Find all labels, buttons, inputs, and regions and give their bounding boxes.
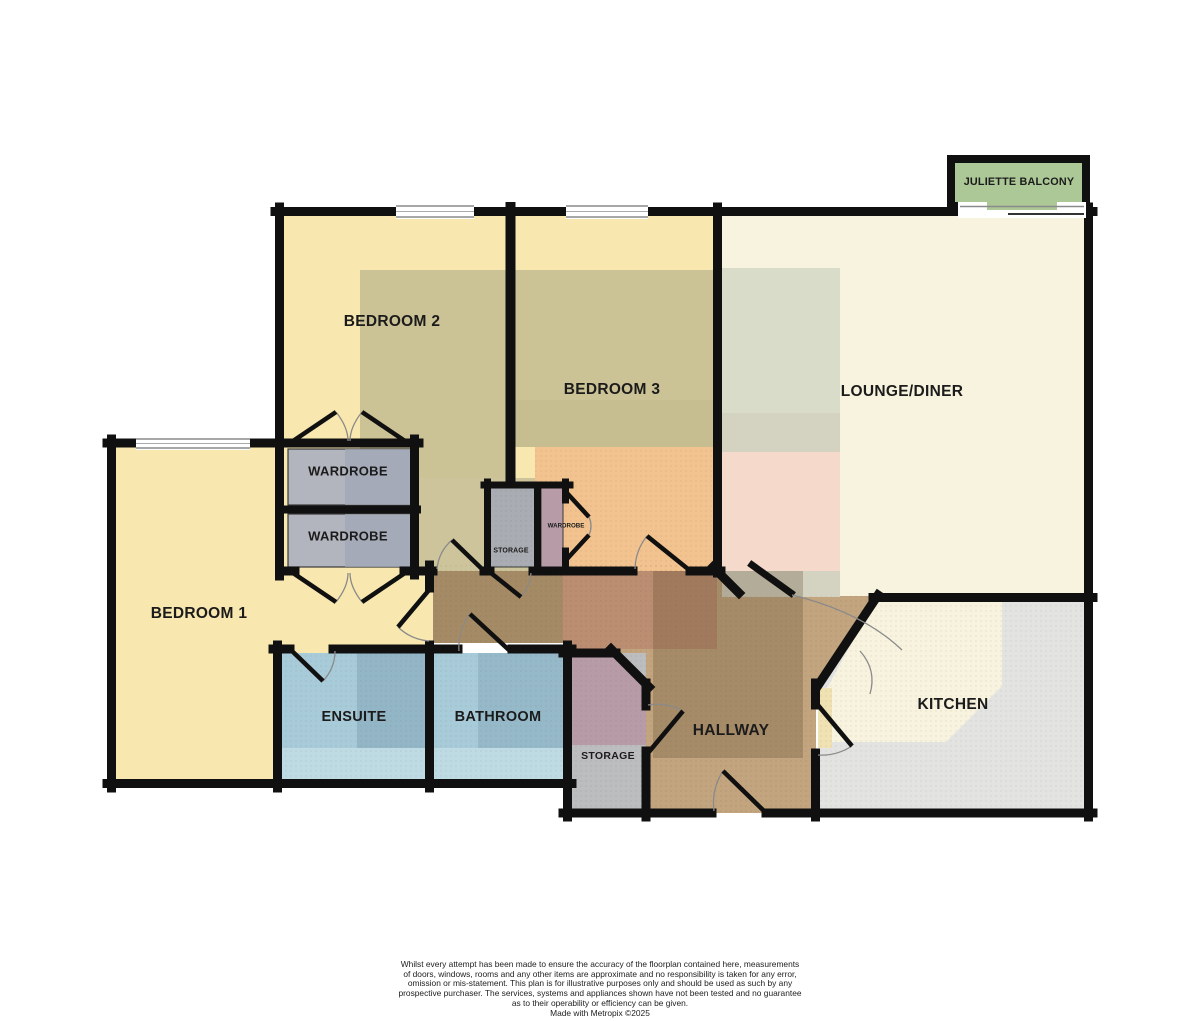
- bedroom1-label: BEDROOM 1: [151, 605, 248, 623]
- wardrobe-bottom-label: WARDROBE: [308, 529, 388, 544]
- bedroom3-label: BEDROOM 3: [564, 381, 661, 399]
- lounge-pink-rect: [722, 452, 840, 571]
- balcony-green-tab: [987, 200, 1057, 210]
- disclaimer: Whilst every attempt has been made to en…: [0, 960, 1200, 1018]
- wardrobe-top-label: WARDROBE: [308, 464, 388, 479]
- wardrobe-small-label: WARDROBE: [548, 523, 585, 530]
- kitchen-label: KITCHEN: [918, 696, 989, 714]
- lounge-label: LOUNGE/DINER: [841, 383, 963, 401]
- bedroom3-window: [566, 204, 648, 219]
- bedroom1-window: [136, 437, 250, 450]
- juliette-balcony-label: JULIETTE BALCONY: [964, 176, 1075, 188]
- storage-mid-label: STORAGE: [493, 548, 528, 555]
- hallway-label: HALLWAY: [693, 722, 769, 740]
- bedroom2-label: BEDROOM 2: [344, 313, 441, 331]
- floorplan-page: BEDROOM 2 BEDROOM 3 LOUNGE/DINER BEDROOM…: [0, 0, 1200, 1021]
- storage-mid-dots: [489, 487, 535, 567]
- floorplan-canvas: [0, 0, 1200, 1021]
- bedroom2-window: [396, 204, 474, 219]
- bedroom3-overlay2: [510, 400, 717, 447]
- storage-bottom-label: STORAGE: [581, 750, 635, 762]
- floors: [107, 207, 1089, 813]
- juliette-balcony-structure: [951, 159, 1086, 218]
- lounge-sage-rect: [722, 268, 840, 413]
- ensuite-label: ENSUITE: [322, 709, 387, 725]
- disclaimer-made-with: Made with Metropix ©2025: [0, 1009, 1200, 1019]
- bathroom-label: BATHROOM: [455, 709, 542, 725]
- lounge-gray-rect: [722, 413, 840, 452]
